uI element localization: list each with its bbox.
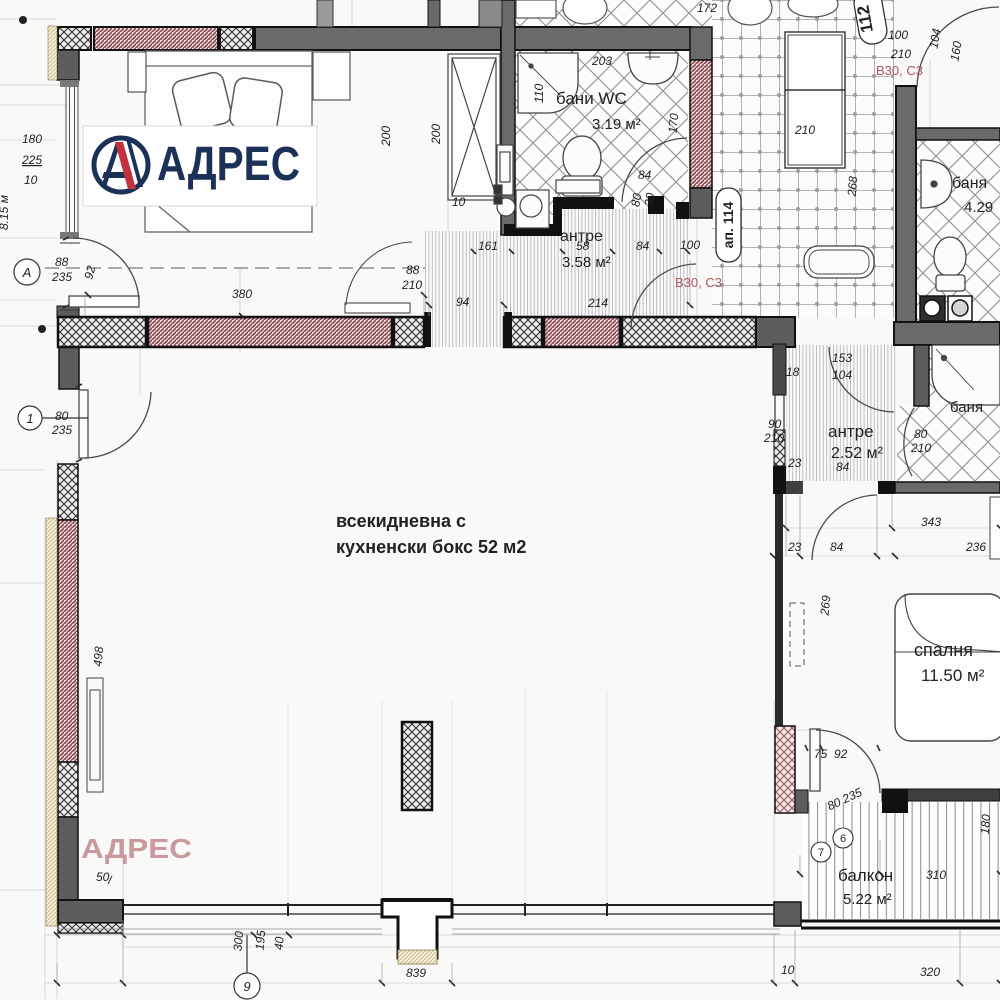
svg-text:210: 210	[890, 47, 911, 61]
svg-text:1: 1	[26, 411, 33, 426]
svg-text:172: 172	[697, 1, 717, 15]
svg-text:161: 161	[478, 239, 498, 253]
svg-text:баня: баня	[950, 399, 983, 416]
svg-text:40: 40	[272, 936, 287, 951]
svg-text:92: 92	[834, 747, 848, 761]
svg-text:84: 84	[830, 540, 844, 554]
svg-text:268: 268	[845, 175, 861, 197]
svg-text:спалня: спалня	[914, 640, 973, 660]
svg-text:235: 235	[51, 423, 72, 437]
svg-text:100: 100	[680, 238, 700, 252]
svg-text:210: 210	[910, 441, 931, 455]
svg-text:236: 236	[965, 540, 986, 554]
svg-text:180: 180	[22, 132, 42, 146]
svg-text:6: 6	[840, 833, 846, 845]
svg-text:210: 210	[401, 278, 422, 292]
svg-text:5.22 м²: 5.22 м²	[843, 891, 892, 908]
svg-text:380: 380	[232, 287, 252, 301]
svg-text:3.58 м²: 3.58 м²	[562, 254, 611, 271]
svg-text:203: 203	[591, 54, 612, 68]
svg-text:А: А	[22, 265, 32, 280]
svg-text:170: 170	[666, 112, 682, 133]
svg-text:ап. 114: ап. 114	[720, 201, 736, 248]
svg-text:8.15 м: 8.15 м	[0, 195, 11, 230]
svg-text:210: 210	[763, 431, 784, 445]
svg-text:180: 180	[978, 813, 994, 834]
svg-text:23: 23	[787, 456, 802, 470]
svg-text:В30, С3: В30, С3	[876, 63, 923, 78]
svg-text:300: 300	[231, 930, 247, 951]
svg-text:343: 343	[921, 515, 941, 529]
svg-text:баня: баня	[952, 175, 987, 192]
svg-text:310: 310	[926, 868, 946, 882]
svg-text:100: 100	[888, 28, 908, 42]
svg-text:10: 10	[452, 195, 466, 209]
svg-text:75: 75	[814, 747, 828, 761]
svg-text:94: 94	[456, 295, 470, 309]
svg-text:балкон: балкон	[838, 866, 893, 885]
svg-text:10: 10	[24, 173, 38, 187]
svg-text:200: 200	[429, 124, 443, 145]
svg-text:84: 84	[638, 168, 652, 182]
svg-text:всекидневна с: всекидневна с	[336, 511, 466, 531]
svg-text:50: 50	[96, 870, 110, 884]
svg-text:кухненски бокс 52 м2: кухненски бокс 52 м2	[336, 537, 526, 557]
svg-text:269: 269	[817, 594, 833, 616]
svg-text:88: 88	[406, 263, 420, 277]
svg-text:225: 225	[21, 153, 42, 167]
svg-text:80: 80	[55, 409, 69, 423]
svg-text:бани WC: бани WC	[556, 89, 627, 108]
svg-text:214: 214	[587, 296, 608, 310]
svg-text:235: 235	[51, 270, 72, 284]
svg-text:7: 7	[818, 847, 824, 859]
svg-text:2.52 м²: 2.52 м²	[831, 445, 884, 462]
svg-text:АДРЕС: АДРЕС	[81, 833, 192, 864]
svg-text:9: 9	[243, 979, 250, 994]
svg-text:11.50 м²: 11.50 м²	[921, 666, 985, 685]
svg-text:498: 498	[90, 646, 106, 667]
svg-text:80: 80	[914, 427, 928, 441]
svg-text:В30, С3: В30, С3	[675, 275, 722, 290]
svg-text:3.19 м²: 3.19 м²	[592, 116, 641, 133]
svg-text:110: 110	[532, 84, 546, 103]
svg-text:153: 153	[832, 351, 852, 365]
svg-text:84: 84	[636, 239, 650, 253]
svg-text:839: 839	[406, 966, 426, 980]
svg-text:90: 90	[768, 417, 782, 431]
svg-text:10: 10	[781, 963, 795, 977]
svg-text:30: 30	[642, 192, 658, 208]
svg-text:200: 200	[379, 126, 393, 147]
svg-text:23: 23	[787, 540, 802, 554]
svg-text:АДРЕС: АДРЕС	[157, 138, 300, 191]
svg-text:антре: антре	[560, 228, 603, 245]
svg-text:18: 18	[786, 365, 800, 379]
svg-text:антре: антре	[828, 422, 874, 441]
svg-text:210: 210	[794, 123, 815, 137]
svg-text:320: 320	[920, 965, 940, 979]
svg-text:84: 84	[836, 460, 850, 474]
svg-text:88: 88	[55, 255, 69, 269]
svg-text:4.29: 4.29	[964, 199, 993, 216]
svg-text:195: 195	[253, 929, 269, 950]
svg-text:104: 104	[832, 368, 852, 382]
